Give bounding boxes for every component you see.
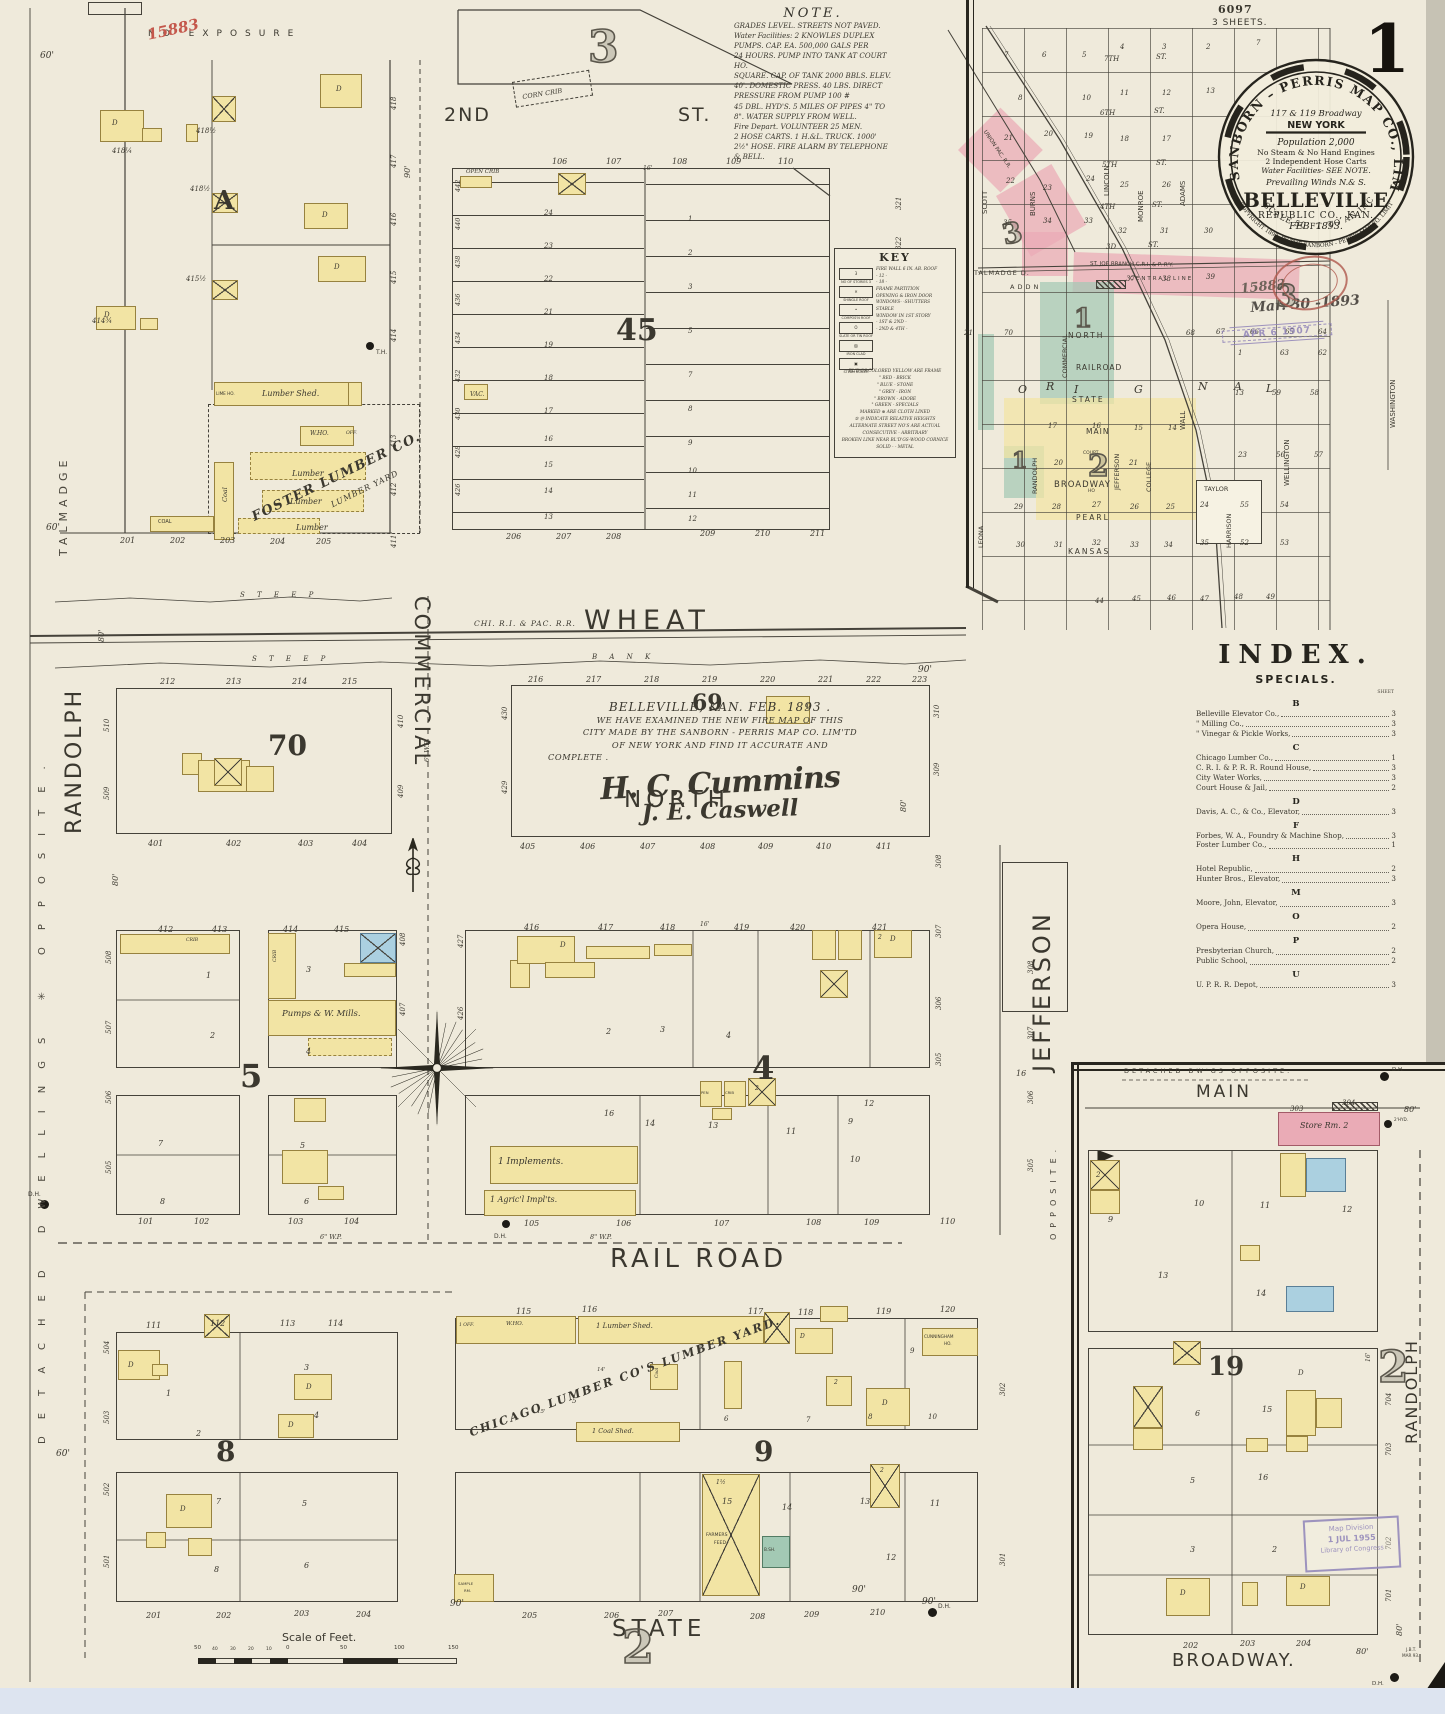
examiner-certificate: BELLEVILLE, KAN. FEB. 1893 . WE HAVE EXA…	[548, 700, 892, 824]
map-label: 16	[544, 436, 553, 443]
index-entry-leader	[1276, 954, 1389, 955]
map-label: TAYLOR	[1204, 486, 1228, 493]
map-label: CRIB	[725, 1091, 734, 1095]
index-entry-leader	[1246, 726, 1389, 727]
map-label: HO	[1088, 490, 1095, 495]
map-building	[502, 1220, 510, 1228]
map-building	[344, 963, 396, 977]
map-label: 418	[391, 97, 398, 110]
map-building	[318, 1186, 344, 1200]
map-label: Lumber	[296, 524, 328, 532]
map-label: 11	[688, 492, 697, 499]
map-label: D	[334, 264, 340, 271]
map-label: 509	[104, 787, 111, 800]
map-label: 411	[391, 535, 398, 548]
map-label: 15	[544, 462, 553, 469]
map-label: 436	[455, 294, 462, 306]
index-entry: Hunter Bros., Elevator,3	[1196, 874, 1396, 884]
map-label: 34	[1164, 542, 1173, 549]
key-glyph-label: COMPOS'N ROOF	[839, 316, 873, 320]
key-rows: FIRE WALL 6 IN. AB. ROOF- 12 -- 18 -FRAM…	[876, 267, 952, 334]
map-label: 18	[544, 375, 553, 382]
map-label: 32	[1092, 540, 1101, 547]
map-building	[212, 280, 238, 300]
note-line: 45 DBL. HYD'S. 5 MILES OF PIPES 4" TO	[734, 102, 892, 112]
map-building	[838, 930, 862, 960]
map-label: 3	[588, 26, 619, 70]
index-entry-leader	[1264, 780, 1389, 781]
map-building	[294, 1374, 332, 1400]
map-label: 35	[1003, 220, 1012, 227]
map-building	[1071, 1062, 1445, 1065]
map-label: 22	[1006, 178, 1015, 185]
seal-engines: No Steam & No Hand Engines	[1257, 148, 1375, 157]
key-glyph-icon: ✕	[839, 286, 873, 298]
index-group-letter: D	[1196, 797, 1396, 807]
index-entry-name: Opera House,	[1196, 922, 1246, 932]
map-label: 37	[1126, 276, 1135, 283]
map-label: 6	[304, 1198, 309, 1206]
map-label: T.H.	[376, 350, 387, 356]
map-label: 31	[1160, 228, 1169, 235]
note-line: 2 HOSE CARTS. 1 H.&L. TRUCK. 1000'	[734, 132, 892, 142]
map-label: 301	[1000, 1553, 1007, 1566]
map-label: TALMADGE	[58, 456, 69, 556]
map-building	[1286, 1576, 1330, 1606]
map-label: 221	[818, 676, 833, 684]
map-label: B.SH.	[764, 1548, 775, 1552]
map-label: RAILROAD	[1076, 364, 1122, 372]
map-label: 14	[782, 1504, 792, 1512]
key-color-row: ALTERNATE STREET NO'S ARE ACTUAL	[838, 424, 952, 431]
map-label: 103	[288, 1218, 303, 1226]
map-label: 47	[1200, 596, 1209, 603]
map-label: 9	[1108, 1216, 1113, 1224]
key-glyph-column: 3NO OF STORIES 3✕SHINGLE ROOF•COMPOS'N R…	[839, 266, 873, 374]
map-label: 13	[544, 514, 553, 521]
map-label: 420	[790, 924, 805, 932]
index-entry-leader	[1275, 760, 1389, 761]
map-label: 106	[616, 1220, 631, 1228]
map-label: 219	[702, 676, 717, 684]
map-building	[152, 1364, 168, 1376]
index-entry-sheet: 2	[1391, 946, 1396, 956]
map-label: 12	[864, 1100, 874, 1108]
map-label: 30	[1204, 228, 1213, 235]
map-label: 12	[886, 1554, 896, 1562]
key-row: - 12 -	[876, 274, 952, 281]
map-label: HO.	[944, 1342, 952, 1346]
map-label: 502	[104, 1483, 111, 1496]
map-label: 1 Implements.	[498, 1158, 563, 1167]
map-building	[966, 0, 969, 588]
map-label: 68	[1186, 330, 1195, 337]
map-label: 2	[1206, 44, 1210, 51]
map-label: 202	[1183, 1642, 1198, 1650]
map-label: 23	[544, 243, 553, 250]
map-label: 306	[936, 997, 943, 1010]
index-entry-name: Court House & Jail,	[1196, 783, 1267, 793]
map-label: 50	[340, 1646, 347, 1652]
index-entry: C. R. I. & P. R. R. Round House,3	[1196, 763, 1396, 773]
map-building	[1166, 1578, 1210, 1616]
map-building	[586, 946, 650, 959]
map-label: 413	[212, 926, 227, 934]
map-label: 210	[755, 530, 770, 538]
seal-address: 117 & 119 Broadway	[1270, 109, 1361, 119]
index-entry-leader	[1280, 906, 1390, 907]
map-label: 107	[714, 1220, 729, 1228]
map-label: 62	[1318, 350, 1327, 357]
key-color-row: " RED - BRICK	[838, 376, 952, 383]
index-entry: Hotel Republic,2	[1196, 864, 1396, 874]
key-glyph-label: NO OF STORIES 3	[839, 280, 873, 284]
map-building	[545, 962, 595, 978]
key-color-row: BL'D'GS COLORED YELLOW ARE FRAME	[838, 369, 952, 376]
map-label: 701	[1386, 1589, 1393, 1602]
map-label: 414	[391, 329, 398, 342]
map-label: 59	[1272, 390, 1281, 397]
map-label: COLLEGE	[1146, 462, 1153, 492]
map-label: 5	[1082, 52, 1086, 59]
map-building	[1380, 1072, 1389, 1081]
map-label: D	[882, 1400, 888, 1407]
map-building	[120, 934, 230, 954]
map-label: 5	[1190, 1477, 1195, 1485]
map-building	[646, 184, 829, 530]
map-label: 102	[194, 1218, 209, 1226]
map-label: 2	[688, 250, 692, 257]
map-building	[188, 1538, 212, 1556]
map-label: 442	[455, 180, 462, 192]
map-label: 31	[1054, 542, 1063, 549]
map-building	[100, 110, 144, 142]
map-label: 402	[226, 840, 241, 848]
map-building	[812, 930, 836, 960]
map-label: 2'HYD.	[1394, 1118, 1408, 1122]
map-label: Pumps & W. Mills.	[282, 1010, 361, 1019]
note-line: 24 HOURS. PUMP INTO TANK AT COURT HO.	[734, 51, 892, 71]
map-label: 104	[344, 1218, 359, 1226]
index-entry-leader	[1260, 987, 1389, 988]
index-entry-name: Foster Lumber Co.,	[1196, 840, 1267, 850]
index-specials: INDEX. SPECIALS. SHEET BBelleville Eleva…	[1196, 640, 1396, 990]
map-label: MAIN	[1196, 1084, 1252, 1101]
note-title: NOTE.	[734, 6, 892, 21]
index-entry-sheet: 2	[1391, 922, 1396, 932]
index-entry-leader	[1346, 838, 1389, 839]
map-building	[1133, 1386, 1163, 1428]
map-label: Lumber Shed.	[262, 390, 319, 398]
map-label: 407	[640, 843, 655, 851]
index-entry: City Water Works,3	[1196, 773, 1396, 783]
map-label: 506	[106, 1091, 113, 1104]
map-label: 416	[524, 924, 539, 932]
note-line: GRADES LEVEL. STREETS NOT PAVED.	[734, 21, 892, 31]
map-label: Store Rm. 2	[1300, 1122, 1348, 1130]
map-label: D	[112, 120, 118, 127]
map-label: 106	[552, 158, 567, 166]
index-subtitle: SPECIALS.	[1196, 673, 1396, 686]
map-label: 222	[866, 676, 881, 684]
map-label: 17	[1162, 136, 1171, 143]
map-label: 8	[216, 1438, 235, 1466]
map-label: COMMERCIAL	[1062, 334, 1069, 378]
key-row: - 1ST & 2ND -	[876, 320, 952, 327]
map-label: 20	[248, 1648, 254, 1653]
map-label: 49	[1266, 594, 1275, 601]
map-label: 40	[212, 1648, 218, 1653]
map-label: 0	[286, 1646, 290, 1652]
seal-population: Population 2,000	[1276, 138, 1355, 148]
map-label: 401	[148, 840, 163, 848]
map-label: 209	[700, 530, 715, 538]
map-building	[866, 1388, 910, 1426]
map-building	[1246, 1438, 1268, 1452]
map-label: JEFFERSON	[1030, 911, 1054, 1072]
map-label: 7	[1004, 52, 1008, 59]
map-label: 27	[1092, 502, 1101, 509]
map-label: 321	[896, 197, 903, 210]
map-building	[1071, 1062, 1074, 1714]
map-building	[1096, 280, 1126, 289]
map-label: 9	[688, 440, 692, 447]
map-label: 10	[928, 1414, 937, 1421]
map-label: 118	[798, 1309, 813, 1317]
map-label: D.H.	[494, 1234, 507, 1240]
map-label: OPEN CRIB	[466, 170, 499, 176]
index-entry-leader	[1281, 716, 1389, 717]
key-title: KEY	[835, 251, 955, 264]
map-label: 201	[146, 1612, 161, 1620]
note-line: Fire Depart. VOLUNTEER 25 MEN.	[734, 122, 892, 132]
map-label: D	[306, 1384, 312, 1391]
map-label: D	[1180, 1590, 1186, 1597]
map-label: 23	[1043, 185, 1052, 192]
sanborn-perris-seal: SANBORN – PERRIS MAP CO., LIMITED 117 & …	[1216, 57, 1416, 257]
map-label: W.HO.	[506, 1322, 523, 1328]
map-building	[318, 256, 366, 282]
map-building	[795, 1328, 833, 1354]
map-label: D	[180, 1506, 186, 1513]
map-building	[88, 2, 142, 15]
map-label: LIME HO.	[216, 392, 235, 396]
map-label: 302	[1000, 1383, 1007, 1396]
key-color-row: BROKEN LINE NEAR BL'D'GS-WOOD CORNICE	[838, 438, 952, 445]
map-label: 7	[1256, 40, 1260, 47]
map-label: 16'	[700, 922, 709, 928]
map-label: 80'	[1356, 1648, 1368, 1656]
key-row: - 2ND & 4TH -	[876, 327, 952, 334]
map-label: 114	[328, 1320, 343, 1328]
map-label: 510	[104, 719, 111, 732]
key-glyph-icon: 3	[839, 268, 873, 280]
index-group-letter: B	[1196, 699, 1396, 709]
index-entry-name: Presbyterian Church,	[1196, 946, 1274, 956]
map-label: 21	[964, 330, 973, 337]
map-label: 13	[708, 1122, 718, 1130]
index-entry-name: Public School,	[1196, 956, 1248, 966]
index-entry-sheet: 2	[1391, 864, 1396, 874]
index-entry-name: C. R. I. & P. R. R. Round House,	[1196, 763, 1311, 773]
map-label: 410	[816, 843, 831, 851]
key-color-row: CONSECUTIVE - ARBITRARY	[838, 431, 952, 438]
key-glyph-label: SLATE OR TIN ROOF	[839, 334, 873, 338]
map-label: ADDN	[1010, 284, 1041, 291]
map-label: 10	[1194, 1200, 1204, 1208]
map-label: PEN	[701, 1091, 709, 1095]
index-entry-name: Davis, A. C., & Co., Elevator,	[1196, 807, 1300, 817]
map-label: 3	[306, 966, 311, 974]
map-building	[1173, 1341, 1201, 1365]
map-building	[116, 1095, 240, 1215]
map-label: 112	[210, 1320, 225, 1328]
key-row: FRAME PARTITION	[876, 287, 952, 294]
map-building	[268, 933, 296, 999]
index-entry: Presbyterian Church,2	[1196, 946, 1396, 956]
map-label: 60'	[56, 1450, 70, 1459]
map-label: 14	[1256, 1290, 1266, 1298]
map-label: 111	[146, 1322, 161, 1330]
map-label: 417	[391, 155, 398, 168]
map-label: 207	[556, 533, 571, 541]
map-label: 406	[580, 843, 595, 851]
certificate-text: WE HAVE EXAMINED THE NEW FIRE MAP OF THI…	[548, 714, 892, 726]
note-line: Water Facilities: 2 KNOWLES DUPLEX	[734, 31, 892, 41]
map-building	[116, 688, 392, 834]
index-entry-leader	[1269, 848, 1390, 849]
map-label: 432	[455, 370, 462, 382]
map-label: 21	[544, 309, 553, 316]
map-label: 2	[606, 1028, 611, 1036]
index-entry: Chicago Lumber Co.,1	[1196, 753, 1396, 763]
index-entry-sheet: 3	[1391, 898, 1396, 908]
map-label: 307	[936, 925, 943, 938]
north-arrow-icon	[398, 838, 428, 894]
map-label: 58	[1310, 390, 1319, 397]
map-label: JEFFERSON	[1114, 454, 1121, 490]
page-edge-right	[1426, 0, 1445, 1062]
map-building	[198, 1658, 216, 1664]
map-label: 28	[1052, 504, 1061, 511]
map-building	[558, 173, 586, 195]
map-label: 426	[455, 484, 462, 496]
map-label: 430	[502, 707, 509, 720]
index-entry-name: Chicago Lumber Co.,	[1196, 753, 1273, 763]
index-entry-name: U. P. R. R. Depot,	[1196, 980, 1258, 990]
map-label: 306	[1028, 1091, 1035, 1104]
map-building	[1384, 1120, 1392, 1128]
map-label: 7	[216, 1498, 221, 1506]
map-label: 105	[524, 1220, 539, 1228]
map-label: 208	[606, 533, 621, 541]
map-label: 17	[1048, 423, 1057, 430]
map-building	[116, 1332, 398, 1440]
note-line: 40'. DOMESTIC PRESS. 40 LBS. DIRECT	[734, 81, 892, 91]
map-label: D	[1300, 1584, 1306, 1591]
map-label: STATE	[1072, 396, 1105, 404]
map-label: 70	[1004, 330, 1013, 337]
map-label: 305	[1028, 1159, 1035, 1172]
map-label: 19	[544, 342, 553, 349]
map-building	[348, 382, 362, 406]
map-label: 304	[1342, 1100, 1355, 1107]
key-legend: KEY 3NO OF STORIES 3✕SHINGLE ROOF•COMPOS…	[834, 248, 956, 458]
map-label: 428	[455, 446, 462, 458]
map-label: 2	[1096, 1172, 1100, 1179]
map-label: 15	[1262, 1406, 1272, 1414]
map-label: 4	[1120, 44, 1124, 51]
map-label: B A N K	[592, 654, 655, 661]
map-label: Coal	[222, 487, 229, 502]
map-building	[212, 96, 236, 122]
map-label: 8" W.P.	[590, 1234, 612, 1241]
map-label: 8	[868, 1414, 872, 1421]
index-entry-leader	[1282, 882, 1389, 883]
certificate-text: CITY MADE BY THE SANBORN - PERRIS MAP CO…	[548, 726, 892, 738]
index-entry: " Vinegar & Pickle Works,3	[1196, 729, 1396, 739]
map-label: 1	[1238, 350, 1242, 357]
map-label: 19	[1084, 133, 1093, 140]
map-label: BROADWAY.	[1172, 1652, 1296, 1670]
map-label: MONROE	[1138, 190, 1145, 222]
map-label: 8	[160, 1198, 165, 1206]
map-label: 209	[804, 1611, 819, 1619]
map-label: 418½	[196, 128, 216, 135]
map-building	[270, 1658, 288, 1664]
map-label: 14'	[597, 1368, 606, 1374]
map-label: 14	[1168, 425, 1177, 432]
map-label: 70	[268, 732, 307, 760]
map-building	[973, 0, 975, 588]
index-group-letter: O	[1196, 912, 1396, 922]
map-label: J.B.T.	[1406, 1648, 1416, 1652]
map-label: 15	[722, 1498, 732, 1506]
map-label: 429	[502, 781, 509, 794]
map-line	[30, 628, 966, 636]
certificate-dateline: BELLEVILLE, KAN. FEB. 1893 .	[548, 700, 892, 714]
map-label: 120	[940, 1306, 955, 1314]
map-building	[1280, 1153, 1306, 1197]
sanborn-map-sheet: NOTE. GRADES LEVEL. STREETS NOT PAVED.Wa…	[0, 0, 1445, 1714]
map-label: 704	[1386, 1393, 1393, 1406]
map-label: 217	[586, 676, 601, 684]
key-row: WINDOW IN 1ST STORY	[876, 314, 952, 321]
note-line: 8". WATER SUPPLY FROM WELL.	[734, 112, 892, 122]
map-label: OFF.	[346, 432, 357, 437]
map-label: 101	[138, 1218, 153, 1226]
map-label: 1	[1074, 306, 1092, 332]
key-glyph-icon: ▨	[839, 340, 873, 352]
map-label: 4	[752, 1052, 774, 1084]
index-entry-leader	[1302, 814, 1389, 815]
map-label: PEARL	[1076, 514, 1110, 522]
map-building	[1240, 1245, 1260, 1261]
index-entry-leader	[1269, 790, 1389, 791]
map-label: 34	[1043, 218, 1052, 225]
index-group-letter: C	[1196, 743, 1396, 753]
map-label: WHEAT	[584, 607, 711, 634]
index-entry-sheet: 1	[1391, 840, 1396, 850]
map-building	[1306, 1158, 1346, 1192]
key-row: WINDOWS- -SHUTTERS	[876, 300, 952, 307]
compass-rose-icon	[377, 1008, 497, 1128]
map-label: 1	[206, 972, 211, 980]
map-label: 206	[506, 533, 521, 541]
key-glyph-label: SHINGLE ROOF	[839, 298, 873, 302]
map-label: 29	[1014, 504, 1023, 511]
map-label: 3	[688, 284, 692, 291]
